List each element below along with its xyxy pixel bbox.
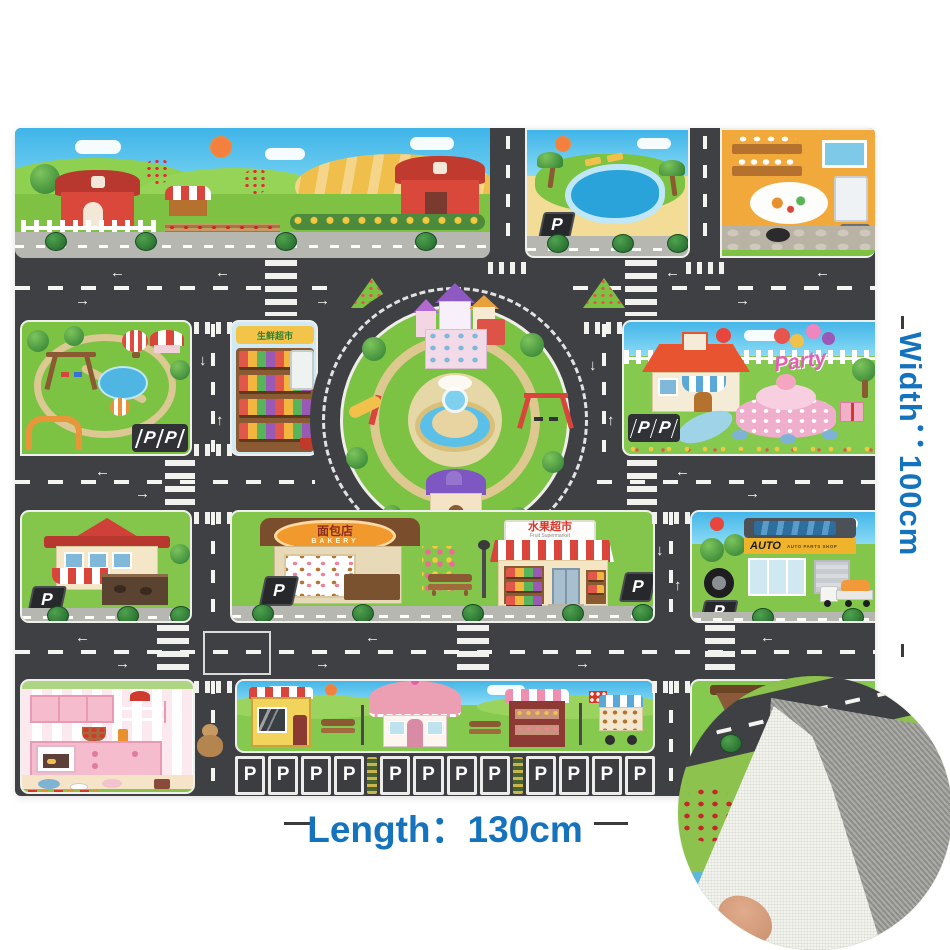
oven [36,745,76,773]
street-lamp [361,705,364,745]
road-arrow-icon: ↑ [674,578,682,593]
crosswalk [625,260,657,316]
parking-letter: P [601,764,614,786]
road-arrow-icon: ← [760,630,775,645]
road-arrow-icon: ↓ [199,353,207,368]
swing-leg [44,352,58,390]
shops-row [235,679,655,753]
cottage-dormer [446,471,462,485]
supermarket-sign-en: Fruit Supermarket [530,533,570,540]
shop-street [232,606,655,623]
castle-tower [439,301,471,331]
kitchen-area [720,128,875,258]
sunflower-hedge [290,214,485,230]
red-balloon-icon [710,517,724,531]
bush [752,608,774,623]
bench-seat [469,729,501,734]
road-lane-marking [573,286,875,290]
teddy-body [197,735,223,757]
bush [842,608,864,623]
bench-back [428,574,472,582]
road-arrow-icon: ← [110,265,125,280]
divider [177,429,185,448]
palm-tree [537,152,563,168]
parking-letter: P [455,764,468,786]
crosswalk [705,625,735,677]
stall-body [169,200,207,216]
parking-stall: P [235,756,265,795]
width-tick-bottom [901,644,904,657]
pavilion-window [389,721,405,735]
crosswalk [488,262,526,274]
parking-letter: P [534,764,547,786]
food-cart [589,693,649,747]
oven-window [43,754,69,768]
road-arrow-icon: ↑ [607,413,615,428]
bench-leg [464,590,468,596]
road-arrow-icon: → [75,293,90,308]
apple-basket [82,727,106,741]
crosswalk [686,262,724,274]
truck-bed [836,590,873,600]
parking-letter: P [389,764,402,786]
bench [469,721,501,737]
length-label: Length：130cm [300,799,590,853]
red-bowl [130,691,150,701]
length-tick-right [594,822,628,825]
balloon-icon [790,334,804,348]
junction-box-marking [203,631,271,675]
farm-area [15,128,490,258]
parking-letter: P [422,764,435,786]
cloud-icon [637,138,671,149]
bush [547,234,569,253]
pink-kitchen-area [20,679,195,794]
parking-sign: P [619,572,655,602]
bush [667,234,689,253]
tree [362,337,386,361]
market-stall [165,186,211,216]
road-arrow-icon: → [575,656,590,671]
gift-box [840,402,864,422]
stall-shelf [515,725,559,735]
road-arrow-icon: ← [665,265,680,280]
balloon-basket [132,352,140,358]
party-parking-sign: PP [628,414,680,442]
tire-icon [704,568,734,598]
auto-showroom-window [748,558,806,596]
patio-table [140,587,152,595]
cart-wheel [605,735,615,745]
shelf-dishes [736,157,796,167]
apple-tree [243,168,269,194]
road-arrow-icon: → [115,656,130,671]
tree [724,534,746,556]
tree [27,330,49,352]
parking-letter: P [142,428,156,448]
bbq-grill [766,228,790,242]
tree [852,358,875,382]
parking-sign-letter: P [549,215,565,235]
bakery-supermarket-area: 面包店 BAKERY 水果超市 Fruit Supermarket [230,510,655,623]
swing-frame [46,352,96,390]
market-sign-text: 生鲜超市 [257,329,293,342]
pool-outer [565,164,665,224]
parking-letter: P [567,764,580,786]
wall-shelf [732,166,802,176]
bush [135,232,157,251]
parking-letter: P [164,428,178,448]
tree-trunk [862,380,868,398]
palm-tree [659,160,685,176]
fridge [834,176,868,222]
road-arrow-icon: ← [75,630,90,645]
divider [671,419,678,438]
cloud-icon [265,148,305,160]
hot-air-balloon [110,398,130,416]
shop-pink-pavilion [369,681,461,747]
bench-leg [432,590,436,596]
cart-awning [599,695,643,707]
tow-truck [820,578,874,606]
road-lane-marking [211,512,215,618]
crosswalk [194,512,234,524]
hot-air-balloon [122,330,148,352]
tree [700,538,724,562]
castle-tower-roof [435,283,475,303]
shop-yellow [249,687,313,747]
carousel-roof [150,330,184,346]
stool [822,430,838,440]
truck-wheel [824,600,831,607]
traffic-island [583,278,625,308]
sun-icon [210,136,232,158]
party-house-area: Party PP [622,320,875,456]
swing-set [522,391,570,431]
road-lane-marking [703,136,707,252]
parking-letter: P [634,764,647,786]
auto-shop-area: AUTO AUTO PARTS SHOP P [690,510,875,623]
stool [780,434,796,444]
flower-divider [513,757,523,794]
parking-letter: P [310,764,323,786]
house-door [694,392,712,412]
cart-body [599,707,643,731]
coffee-patio [102,574,168,605]
pool-water [571,170,659,218]
crosswalk [627,460,657,506]
parking-stall: P [592,756,622,795]
truck-wheel [845,600,852,607]
pavilion-roof [369,681,461,717]
crosswalk [194,444,234,456]
street-lamp-head [478,540,490,550]
crosswalk [652,681,692,693]
produce-row [506,568,542,579]
bush [562,604,584,623]
tree [542,451,564,473]
produce-row [588,572,604,582]
auto-sign-text: AUTO [750,540,781,552]
parking-stall: P [625,756,655,795]
parking-sign-letter: P [630,577,646,597]
width-label: Width：100cm [888,332,933,642]
road-lane-marking [669,681,673,785]
road-lane-marking [211,324,215,452]
towed-car [841,580,870,591]
road-arrow-icon: → [315,293,330,308]
barn-loft-window [91,176,105,188]
castle-base [425,329,487,369]
parking-sign-letter: P [271,581,287,601]
wall-shelf [120,701,166,723]
road-lane-marking [506,136,510,252]
coffee-window [112,552,132,569]
divider [650,419,657,438]
produce-row [239,399,311,418]
market-stand: 生鲜超市 [230,320,318,456]
market-sign: 生鲜超市 [236,326,314,344]
bush [632,604,654,623]
mat-corner-inset-photo [678,676,950,950]
drawer-knob [132,751,138,757]
cloud-icon [410,137,454,150]
swing-seat [61,372,69,377]
floor-bowl [38,779,60,789]
patio-table [114,585,126,593]
tree [346,447,368,469]
supermarket-door [552,568,580,606]
shop-red-stall [505,689,569,747]
bush [45,232,67,251]
shop-window [257,707,287,733]
cloud-icon [75,140,121,154]
parking-stall: P [334,756,364,795]
road-arrow-icon: ← [95,464,110,479]
supermarket-sign: 水果超市 Fruit Supermarket [504,520,596,542]
crosswalk [652,512,692,524]
crosswalk [165,460,195,506]
parking-letter: P [657,418,671,438]
bush [462,604,484,623]
parking-stall: P [301,756,331,795]
house-awning [682,376,726,392]
park-entrance-arch [26,416,82,450]
wall-shelf [732,144,802,154]
pavilion-door [407,719,423,747]
cake-slice [154,779,170,789]
road-arrow-icon: ← [675,464,690,479]
picnic-rug [750,182,828,224]
bench-seat [321,728,355,733]
coffee-house-area: P [20,510,192,623]
parking-stall: P [380,756,410,795]
crosswalk [457,625,489,677]
sun-icon [555,136,571,152]
park-parking-sign: PP [132,424,188,452]
pavilion-window [427,721,443,735]
parking-stall: P [413,756,443,795]
birthday-cake [736,378,838,440]
road-lane-marking [669,512,673,618]
divider [156,429,164,448]
parking-stall: P [268,756,298,795]
supermarket-shelf [586,570,606,604]
crosswalk [157,625,189,677]
brand-marks [28,790,98,794]
produce-row [588,585,604,595]
slide [344,391,388,431]
crosswalk [265,260,297,316]
bush [720,734,742,753]
stall-body [509,701,565,747]
supermarket-sign-cn: 水果超市 [528,522,572,533]
valance [22,681,195,689]
drawer-knob [92,751,98,757]
road-arrow-icon: → [315,656,330,671]
road-lane-marking [602,324,606,452]
crosswalk [584,322,624,334]
sun-icon [325,684,337,696]
produce-row [506,582,542,593]
width-tick-top [901,316,904,329]
flower-strip [624,444,875,456]
bush [117,606,139,623]
tree [520,333,544,357]
bread-in-oven [47,759,56,764]
carousel-base [154,345,180,353]
parking-letter: P [277,764,290,786]
swing-leg [83,352,97,390]
swing-seat [74,372,82,377]
bench-back [321,719,355,726]
shelf-dishes [736,134,796,144]
stall-shelf [515,709,559,719]
parking-letter: P [244,764,257,786]
bush [612,234,634,253]
stall-canopy [165,186,211,200]
street-lamp [482,546,486,598]
supermarket-shelf [504,566,544,604]
bush [352,604,374,623]
barn-right [395,156,485,220]
tree [170,544,190,564]
supermarket-awning [490,540,614,562]
carousel [150,330,184,354]
house-dormer [682,332,708,352]
swing-seat [549,417,558,421]
road-arrow-icon: ← [815,265,830,280]
tree [64,326,84,346]
road-arrow-icon: ← [365,630,380,645]
bench-back [469,721,501,727]
road-arrow-icon: → [735,293,750,308]
slide-chute [347,394,383,420]
road-arrow-icon: → [745,486,760,501]
auto-glass-roof [754,521,836,535]
bakery-sign-cn: 面包店 [317,525,353,537]
kitchen-window [822,140,867,168]
fridge-case [290,350,314,390]
drawer-knob [92,763,98,769]
house-window [658,378,678,396]
cart-wheel [627,735,637,745]
coffee-window [64,552,84,569]
castle [405,283,505,375]
road-arrow-icon: ↓ [656,543,664,558]
barn-loft-window [433,162,447,174]
crosswalk [194,681,234,693]
balloon-icon [806,324,821,339]
floor-bowl [102,779,122,788]
kitchen-lawn-strip [722,250,875,258]
parking-row: P P P P P P P P P P P P [235,755,655,795]
auto-sign-subtext: AUTO PARTS SHOP [787,544,837,549]
pool-area: P [525,128,690,258]
bakery-counter [344,574,400,600]
road-lane-marking [15,650,875,654]
parking-stall: P [480,756,510,795]
swing-seat [534,417,543,421]
parking-stall: P [559,756,589,795]
crosswalk [194,322,234,334]
bench [428,574,472,596]
balloon-icon [774,328,790,344]
bush [415,232,437,251]
bush [275,232,297,251]
stool [732,430,748,440]
road-arrow-icon: ↑ [216,413,224,428]
teddy-bear [197,724,223,758]
parking-letter: P [488,764,501,786]
shop-door [293,715,307,745]
bush [252,604,274,623]
street-lamp [579,703,582,745]
coffee-window [88,552,108,569]
product-photo: P ← → ← → [0,0,950,950]
parking-sign: P [259,576,299,606]
park-pond [98,366,148,400]
tree [170,360,190,380]
parking-letter: P [343,764,356,786]
fountain-spray [438,375,472,391]
park-area: PP [20,320,192,456]
parking-letter: P [637,418,651,438]
parking-stall: P [526,756,556,795]
road-arrow-icon: ← [215,265,230,280]
bench [321,719,355,737]
truck-wheel [863,600,870,607]
auto-fascia: AUTO AUTO PARTS SHOP [744,538,856,554]
balloon-icon [822,332,835,345]
upper-cabinets [30,695,114,723]
house [642,330,750,412]
parking-stall: P [447,756,477,795]
divider [135,429,143,448]
bush [170,606,192,623]
flower-divider [367,757,377,794]
apple-tree [145,158,171,184]
bush [47,606,69,623]
road-arrow-icon: → [135,486,150,501]
cake-topper [776,374,796,390]
